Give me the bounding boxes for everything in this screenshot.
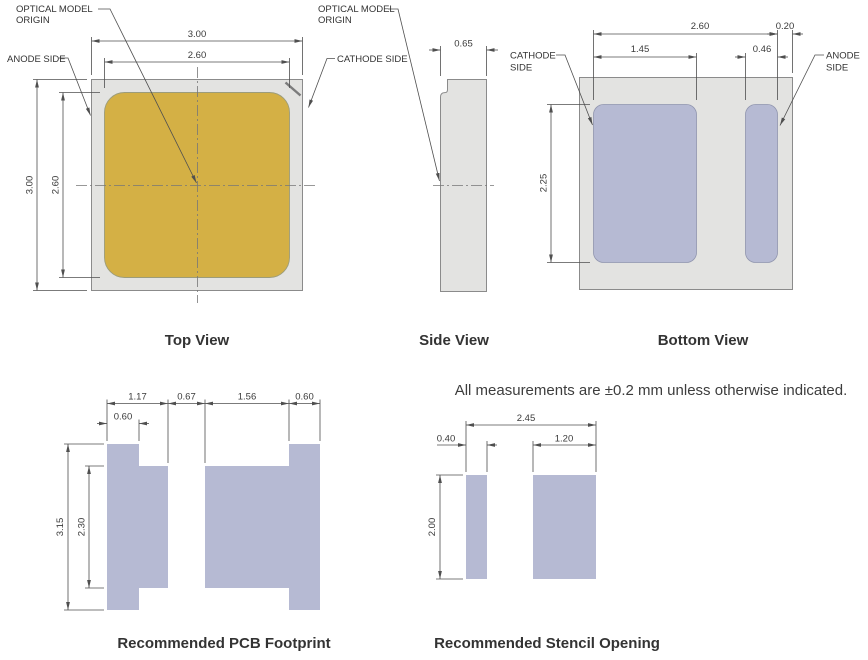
dim-stencil-cathode-width: 0.40 (437, 434, 456, 445)
led-package-drawing: 3.00 2.60 3.00 2.60 OPTICAL MODEL ORIGIN… (0, 0, 868, 660)
dim-footprint-gap: 0.67 (177, 392, 196, 403)
dim-bottom-cathode-pad-width: 1.45 (631, 44, 650, 55)
label-anode-side-top: ANODE SIDE (7, 54, 66, 65)
pcb-footprint-title: Recommended PCB Footprint (117, 635, 330, 652)
dim-top-emitter-height: 2.60 (51, 176, 62, 195)
dim-bottom-anode-pad-width: 0.46 (753, 44, 772, 55)
label-optical-model-origin-side-2: ORIGIN (318, 15, 352, 26)
stencil-cathode-opening (466, 475, 487, 579)
dim-footprint-body-height: 2.30 (77, 518, 88, 537)
dim-footprint-anode-width: 1.56 (238, 392, 257, 403)
dim-side-thickness: 0.65 (454, 39, 473, 50)
dim-footprint-overall-height: 3.15 (55, 518, 66, 537)
bottom-view-title: Bottom View (658, 332, 749, 349)
dim-stencil-anode-width: 1.20 (555, 434, 574, 445)
label-cathode-side-top: CATHODE SIDE (337, 54, 408, 65)
top-view: 3.00 2.60 3.00 2.60 OPTICAL MODEL ORIGIN… (7, 4, 408, 349)
dim-top-emitter-width: 2.60 (188, 50, 207, 61)
stencil-opening: 2.45 0.40 1.20 2.00 Recommended Stencil … (427, 413, 660, 652)
tolerance-note: All measurements are ±0.2 mm unless othe… (455, 382, 848, 399)
bottom-view-cathode-pad (594, 105, 697, 263)
label-cathode-side-bottom-2: SIDE (510, 63, 532, 74)
technical-drawing-svg: 3.00 2.60 3.00 2.60 OPTICAL MODEL ORIGIN… (0, 0, 868, 660)
dim-footprint-cathode-width: 1.17 (128, 392, 147, 403)
pcb-footprint: 1.17 0.67 1.56 0.60 0.60 3.15 2.30 Recom… (55, 392, 331, 653)
dim-footprint-anode-tab-width: 0.60 (295, 392, 314, 403)
side-view-leader-line (388, 9, 440, 181)
top-view-emitter-area (105, 93, 290, 278)
side-view-title: Side View (419, 332, 489, 349)
stencil-anode-opening (533, 475, 596, 579)
label-optical-model-origin-top-1: OPTICAL MODEL (16, 4, 93, 15)
footprint-cathode-pad (107, 444, 168, 610)
dim-stencil-overall-width: 2.45 (517, 413, 536, 424)
dim-stencil-height: 2.00 (427, 518, 438, 537)
bottom-view: 2.60 0.20 1.45 0.46 2.25 CATHODE SIDE AN… (510, 21, 860, 349)
label-anode-side-bottom-2: SIDE (826, 63, 848, 74)
label-optical-model-origin-top-2: ORIGIN (16, 15, 50, 26)
label-cathode-side-bottom-1: CATHODE (510, 51, 556, 62)
stencil-opening-title: Recommended Stencil Opening (434, 635, 660, 652)
dim-footprint-cathode-tab-width: 0.60 (114, 412, 133, 423)
label-optical-model-origin-side-1: OPTICAL MODEL (318, 4, 395, 15)
bottom-view-anode-pad (746, 105, 778, 263)
side-view-extension-lines (441, 46, 487, 76)
dim-top-outer-width: 3.00 (188, 29, 207, 40)
dim-bottom-pads-span: 2.60 (691, 21, 710, 32)
top-view-title: Top View (165, 332, 230, 349)
dim-bottom-edge-gap: 0.20 (776, 21, 795, 32)
dim-top-outer-height: 3.00 (25, 176, 36, 195)
dim-bottom-pad-height: 2.25 (539, 174, 550, 193)
footprint-anode-pad (205, 444, 320, 610)
label-anode-side-bottom-1: ANODE (826, 51, 860, 62)
